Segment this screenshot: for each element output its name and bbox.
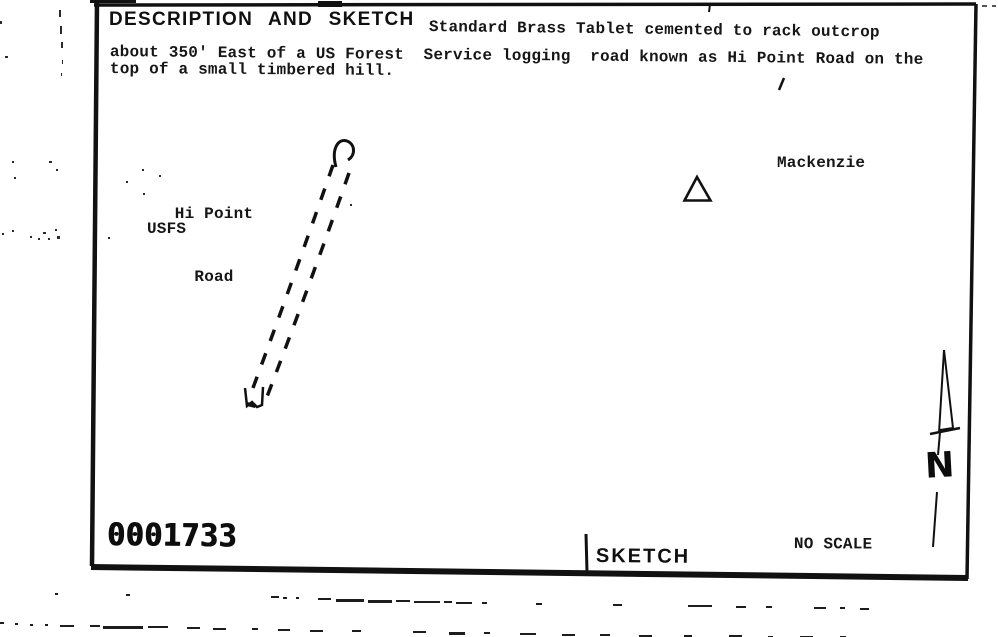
form-border-top-bump bbox=[318, 1, 342, 7]
agency-label: USFS bbox=[147, 221, 186, 238]
sketch-section-label: SKETCH bbox=[596, 545, 690, 569]
road-top-hook bbox=[334, 141, 353, 167]
triangle-station-marker-icon bbox=[685, 177, 711, 201]
scan-noise-bottom-row-2 bbox=[0, 622, 846, 637]
north-arrow-letter: N bbox=[924, 448, 955, 484]
dashed-road-line-right bbox=[265, 173, 349, 402]
road-name-label: Hi Point Road bbox=[168, 162, 260, 330]
form-border-right bbox=[967, 4, 976, 579]
serial-number-stamp: 0001733 bbox=[107, 517, 237, 555]
stray-tick-mark bbox=[779, 78, 784, 90]
road-name-line-2: Road bbox=[168, 267, 260, 288]
form-border-top-tick bbox=[709, 4, 710, 12]
dashed-road-line-left bbox=[250, 165, 333, 396]
corner-dash-2 bbox=[992, 5, 996, 7]
station-name-label: Mackenzie bbox=[777, 155, 865, 172]
form-title: DESCRIPTION AND SKETCH bbox=[109, 9, 415, 31]
form-border-left bbox=[92, 2, 97, 566]
sketch-section-divider bbox=[586, 534, 587, 572]
form-border-bottom bbox=[91, 567, 968, 578]
scanned-survey-form: DESCRIPTION AND SKETCH Standard Brass Ta… bbox=[0, 0, 998, 637]
scale-note: NO SCALE bbox=[794, 536, 873, 554]
scan-noise-bottom-row-1 bbox=[55, 593, 869, 610]
form-border-top bbox=[94, 4, 976, 5]
corner-dash-1 bbox=[982, 5, 987, 7]
description-line-3: top of a small timbered hill. bbox=[110, 61, 394, 80]
